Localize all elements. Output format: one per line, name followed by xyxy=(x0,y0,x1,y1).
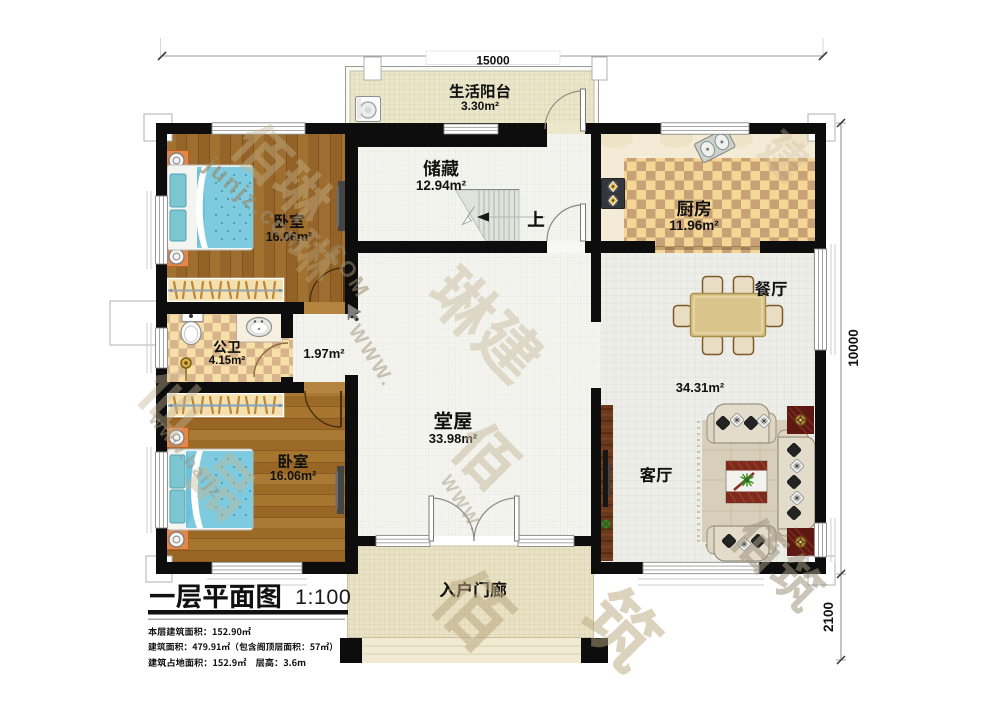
svg-text:2100: 2100 xyxy=(821,602,836,632)
svg-text:12.94m²: 12.94m² xyxy=(416,178,467,193)
svg-text:16.06m²: 16.06m² xyxy=(270,469,317,483)
svg-text:34.31m²: 34.31m² xyxy=(676,380,725,395)
svg-text:11.96m²: 11.96m² xyxy=(669,218,719,233)
svg-text:1:100: 1:100 xyxy=(295,585,351,609)
svg-text:1.97m²: 1.97m² xyxy=(303,346,345,361)
svg-text:15000: 15000 xyxy=(476,54,510,68)
svg-text:3.30m²: 3.30m² xyxy=(461,99,499,113)
svg-text:10000: 10000 xyxy=(846,329,861,367)
svg-text:4.15m²: 4.15m² xyxy=(209,355,246,367)
